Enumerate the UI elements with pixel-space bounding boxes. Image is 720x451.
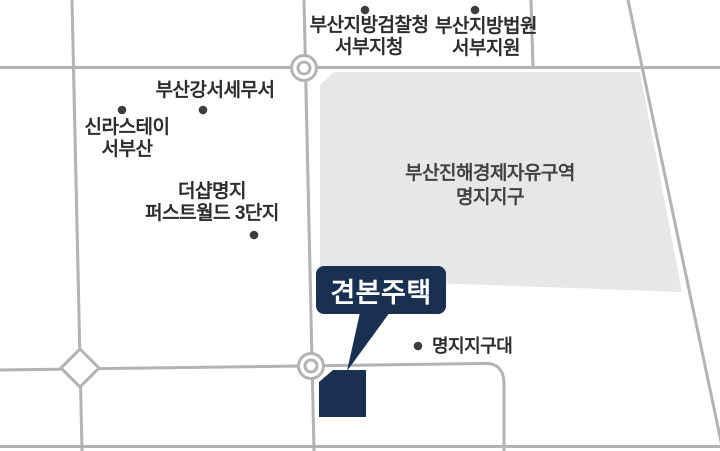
label-line: 부산지방법원 xyxy=(435,16,537,37)
label-the-sharp-complex: 더샵명지 퍼스트월드 3단지 xyxy=(145,181,279,225)
label-prosecutors-office: 부산지방검찰청 서부지청 xyxy=(310,15,429,59)
label-line: 부산강서세무서 xyxy=(156,80,275,101)
model-house-callout: 견본주택 xyxy=(316,266,446,314)
label-line: 명지지구대 xyxy=(432,336,512,356)
poi-dot-tax-office xyxy=(199,106,208,115)
model-house-marker xyxy=(319,370,366,417)
label-shilla-stay: 신라스테이 서부산 xyxy=(85,117,170,161)
label-line: 부산진해경제자유구역 xyxy=(405,163,575,184)
label-line: 더샵명지 xyxy=(178,181,246,202)
callout-pointer xyxy=(347,308,393,371)
label-line: 서부지청 xyxy=(335,37,403,58)
poi-dot-prosecutors xyxy=(361,6,370,15)
label-line: 서부산 xyxy=(102,139,153,160)
map-canvas xyxy=(0,0,720,451)
poi-dot-the-sharp xyxy=(250,231,259,240)
label-economic-zone: 부산진해경제자유구역 명지지구 xyxy=(405,162,575,210)
label-tax-office: 부산강서세무서 xyxy=(156,80,275,102)
label-district-court: 부산지방법원 서부지원 xyxy=(435,16,537,60)
label-line: 서부지원 xyxy=(452,38,520,59)
roundabout-top-icon xyxy=(292,56,317,81)
label-line: 신라스테이 xyxy=(85,117,170,138)
label-line: 부산지방검찰청 xyxy=(310,15,429,36)
location-map: 부산지방검찰청 서부지청 부산지방법원 서부지원 부산강서세무서 신라스테이 서… xyxy=(0,0,720,451)
label-line: 퍼스트월드 3단지 xyxy=(145,203,279,224)
poi-dot-court xyxy=(471,6,480,15)
label-line: 명지지구 xyxy=(456,187,524,208)
poi-dot-police-substation xyxy=(414,342,423,351)
roundabout-bottom-icon xyxy=(299,354,324,379)
diamond-junction-icon xyxy=(61,349,99,387)
label-police-substation: 명지지구대 xyxy=(432,335,512,357)
poi-dot-shilla-stay xyxy=(118,106,127,115)
callout-text: 견본주택 xyxy=(330,271,431,310)
